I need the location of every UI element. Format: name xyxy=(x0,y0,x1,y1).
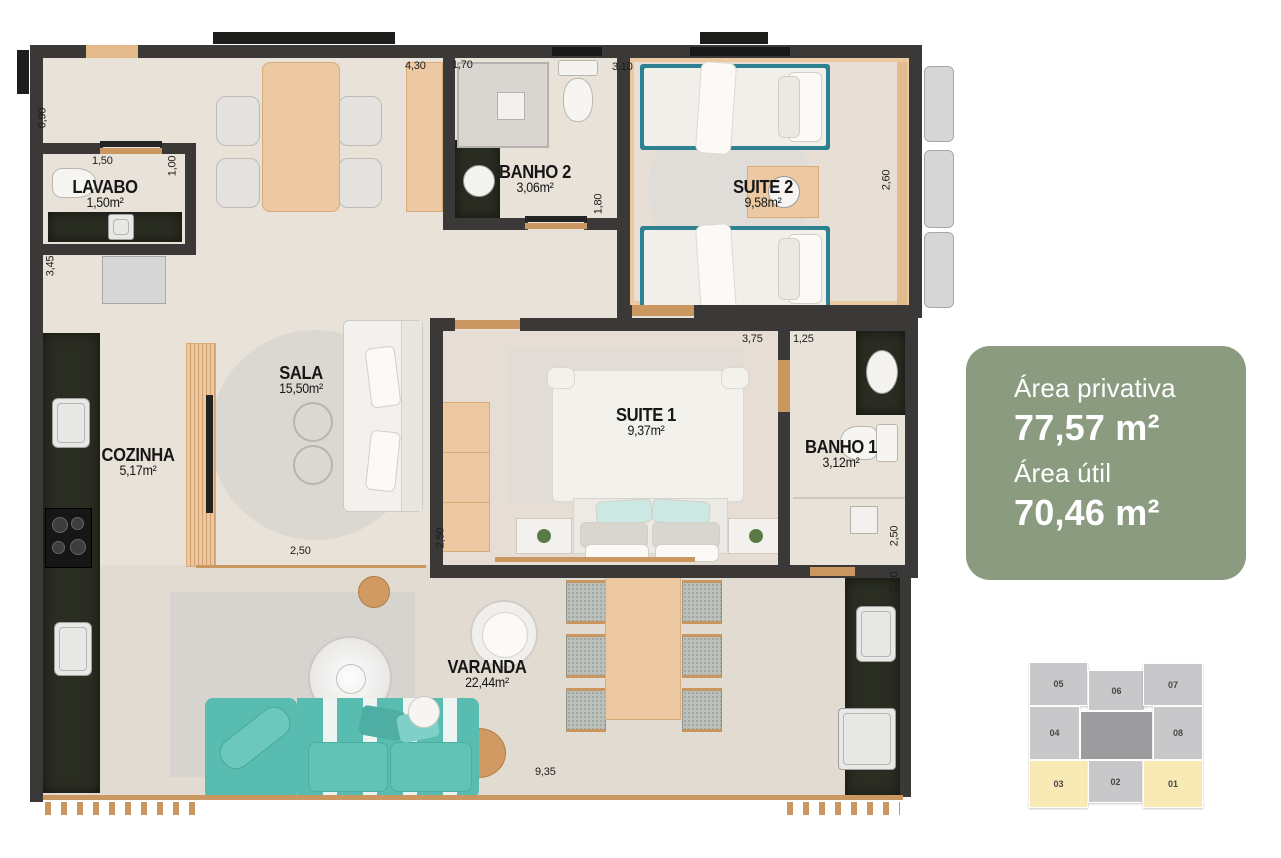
unit-number: 08 xyxy=(1173,728,1183,738)
wall-banho2-left xyxy=(443,58,455,230)
unit-01: 01 xyxy=(1143,760,1203,808)
dim-label: 1,70 xyxy=(452,59,473,71)
room-name: SUITE 2 xyxy=(703,178,823,196)
dim-label: 1,00 xyxy=(166,156,178,177)
slab-edge xyxy=(700,32,768,44)
wall-suite1-top xyxy=(430,318,455,331)
wall-right-mid xyxy=(905,318,918,578)
unit-number: 04 xyxy=(1049,728,1059,738)
room-label-cozinha: COZINHA 5,17m² xyxy=(78,446,198,478)
dining-chair xyxy=(338,96,382,146)
wall-right-upper xyxy=(909,45,922,318)
usable-area-label: Área útil xyxy=(1014,457,1246,490)
dining-table xyxy=(262,62,340,212)
suite1-door xyxy=(455,320,520,329)
room-area: 9,58m² xyxy=(703,196,823,210)
kitchen-sink xyxy=(52,398,90,448)
dim-label: 0,90 xyxy=(36,108,48,129)
area-info-card: Área privativa 77,57 m² Área útil 70,46 … xyxy=(966,346,1246,580)
dim-label: 3,75 xyxy=(742,333,763,345)
unit-06: 06 xyxy=(1088,670,1145,711)
wall-left xyxy=(30,45,43,802)
unit-number: 02 xyxy=(1110,777,1120,787)
room-label-sala: SALA 15,50m² xyxy=(241,364,361,396)
dining-chair xyxy=(338,158,382,208)
wall-suite1-banho1 xyxy=(778,331,790,360)
dim-label: 9,35 xyxy=(535,766,556,778)
suite2-bed-1 xyxy=(640,64,830,150)
varanda-chaise xyxy=(205,698,297,800)
suite2-door xyxy=(632,305,694,316)
room-area: 5,17m² xyxy=(78,464,198,478)
banho1-door xyxy=(778,360,790,412)
floorplan-page: LAVABO 1,50m² BANHO 2 3,06m² SUITE 2 9,5… xyxy=(0,0,1281,858)
unit-number: 05 xyxy=(1053,679,1063,689)
banho2-sliding-door xyxy=(525,216,587,222)
banho1-service-door xyxy=(810,567,855,576)
suite1-window-sill xyxy=(495,557,695,562)
lavabo-sliding-door xyxy=(100,141,162,147)
room-area: 3,12m² xyxy=(781,456,901,470)
laundry-tank xyxy=(838,708,896,770)
wall-suite2-bottom xyxy=(617,305,632,318)
dining-chair xyxy=(216,158,260,208)
suite1-nightstand xyxy=(516,518,572,554)
room-label-lavabo: LAVABO 1,50m² xyxy=(45,178,165,210)
dim-label: 2,50 xyxy=(290,545,311,557)
ac-condenser xyxy=(924,150,954,228)
wall-suite1-bottom xyxy=(430,565,790,578)
entry-door xyxy=(86,45,138,58)
rail-ticks-right xyxy=(787,802,900,815)
varanda-sofa xyxy=(297,698,479,798)
dim-line-sala xyxy=(196,565,426,568)
kitchen-sink-2 xyxy=(54,622,92,676)
banho2-sliding-door-leaf xyxy=(525,223,587,229)
room-name: BANHO 1 xyxy=(781,438,901,456)
dim-label: 2,40 xyxy=(888,572,900,593)
banho1-shower-drain xyxy=(850,506,878,534)
wall-lavabo-right xyxy=(185,143,196,255)
side-stool xyxy=(358,576,390,608)
window-banho2 xyxy=(552,47,602,56)
unit-number: 01 xyxy=(1168,779,1178,789)
dim-label: 4,30 xyxy=(405,60,426,72)
wall-banho1-top xyxy=(790,318,905,331)
dim-label: 1,25 xyxy=(793,333,814,345)
ac-condenser xyxy=(924,232,954,308)
dim-label: 2,50 xyxy=(888,526,900,547)
lavabo-sink xyxy=(108,214,134,240)
entry-cabinet xyxy=(406,62,443,212)
room-area: 3,06m² xyxy=(475,181,595,195)
room-name: LAVABO xyxy=(45,178,165,196)
wall-lavabo-bottom xyxy=(43,244,196,255)
banho2-toilet xyxy=(563,78,593,122)
room-name: SUITE 1 xyxy=(586,406,706,424)
unit-05: 05 xyxy=(1029,662,1088,706)
cooktop xyxy=(45,508,92,568)
wall-suite1-top xyxy=(520,318,790,331)
room-area: 1,50m² xyxy=(45,196,165,210)
banho2-toilet-tank xyxy=(558,60,598,76)
varanda-chair xyxy=(682,634,722,678)
suite1-nightstand xyxy=(728,518,784,554)
dining-chair xyxy=(216,96,260,146)
room-label-suite2: SUITE 2 9,58m² xyxy=(703,178,823,210)
unit-03: 03 xyxy=(1029,760,1088,808)
wall-suite2-bottom xyxy=(694,305,922,318)
room-label-suite1: SUITE 1 9,37m² xyxy=(586,406,706,438)
sala-sofa xyxy=(343,320,423,512)
unit-number: 03 xyxy=(1053,779,1063,789)
dim-label: 2,50 xyxy=(434,528,446,549)
varanda-chair xyxy=(682,580,722,624)
varanda-chair xyxy=(566,580,606,624)
varanda-chair xyxy=(566,634,606,678)
room-name: COZINHA xyxy=(78,446,198,464)
slab-edge xyxy=(17,50,29,94)
unit-08: 08 xyxy=(1153,706,1203,760)
room-area: 9,37m² xyxy=(586,424,706,438)
room-area: 15,50m² xyxy=(241,382,361,396)
varanda-table xyxy=(605,573,681,720)
suite2-bed-throw xyxy=(695,223,737,317)
building-core xyxy=(1080,711,1153,760)
window-suite2 xyxy=(690,47,790,56)
room-name: SALA xyxy=(241,364,361,382)
usable-area-value: 70,46 m² xyxy=(1014,490,1246,537)
varanda-chair xyxy=(682,688,722,732)
tv xyxy=(206,395,213,513)
wall-suite1-banho1 xyxy=(778,412,790,578)
slab-edge xyxy=(213,32,395,44)
fridge xyxy=(102,256,166,304)
wall-banho2-bottom xyxy=(443,218,528,230)
dim-label: 2,60 xyxy=(880,170,892,191)
rail-ticks-left xyxy=(45,802,205,815)
unit-number: 06 xyxy=(1111,686,1121,696)
room-label-banho2: BANHO 2 3,06m² xyxy=(475,163,595,195)
unit-number: 07 xyxy=(1168,680,1178,690)
dim-label: 3,10 xyxy=(612,61,633,73)
room-label-banho1: BANHO 1 3,12m² xyxy=(781,438,901,470)
banho1-shower-divider xyxy=(793,497,905,499)
dim-label: 1,50 xyxy=(92,155,113,167)
wall-right-varanda xyxy=(900,578,911,797)
room-area: 22,44m² xyxy=(427,676,547,690)
suite2-bed-2 xyxy=(640,226,830,312)
private-area-value: 77,57 m² xyxy=(1014,405,1246,452)
room-label-varanda: VARANDA 22,44m² xyxy=(427,658,547,690)
unit-04: 04 xyxy=(1029,706,1080,760)
room-name: VARANDA xyxy=(427,658,547,676)
ottoman xyxy=(293,402,333,442)
varanda-rail xyxy=(43,795,903,800)
lavabo-sliding-door-leaf xyxy=(100,148,162,154)
wall-banho2-bottom xyxy=(584,218,630,230)
wall-lavabo-top xyxy=(43,143,103,154)
ottoman xyxy=(293,445,333,485)
dim-label: 3,45 xyxy=(44,256,56,277)
unit-07: 07 xyxy=(1143,663,1203,706)
private-area-label: Área privativa xyxy=(1014,372,1246,405)
dim-label: 1,80 xyxy=(592,194,604,215)
varanda-chair xyxy=(566,688,606,732)
banho1-sink xyxy=(866,350,898,394)
suite2-bed-throw xyxy=(695,61,737,155)
planter-sink xyxy=(856,606,896,662)
wall-banho2-suite2 xyxy=(617,58,630,230)
unit-02: 02 xyxy=(1088,760,1143,803)
suite2-wall-trim xyxy=(897,62,907,305)
unit-locator: 05 06 07 04 08 03 02 01 xyxy=(1025,658,1207,812)
room-name: BANHO 2 xyxy=(475,163,595,181)
banho2-shower xyxy=(457,62,549,148)
ac-condenser xyxy=(924,66,954,142)
